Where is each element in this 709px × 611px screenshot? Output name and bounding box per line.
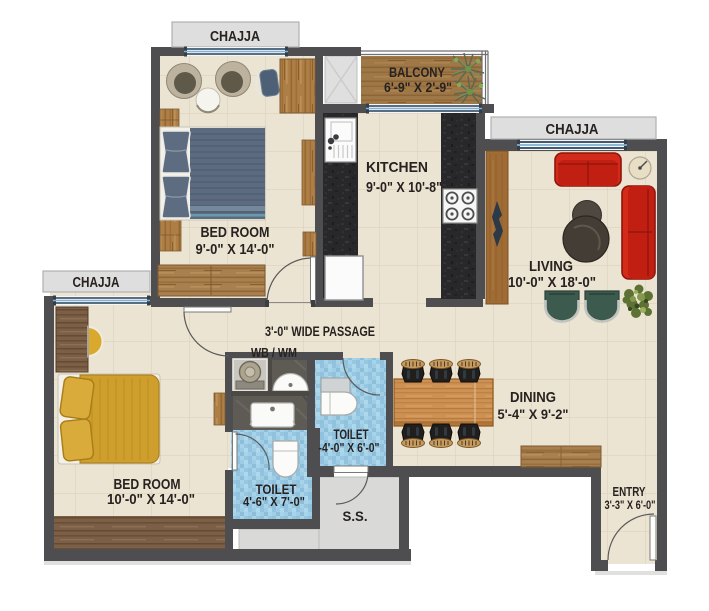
svg-text:S.S.: S.S.	[343, 508, 368, 524]
svg-text:9'-0" X 10'-8": 9'-0" X 10'-8"	[366, 179, 442, 196]
svg-text:4'-6" X 7'-0": 4'-6" X 7'-0"	[243, 495, 305, 509]
svg-text:ENTRY: ENTRY	[613, 484, 646, 499]
svg-text:5'-4" X 9'-2": 5'-4" X 9'-2"	[498, 406, 569, 422]
svg-text:CHAJJA: CHAJJA	[210, 29, 260, 45]
svg-text:9'-0" X 14'-0": 9'-0" X 14'-0"	[196, 241, 275, 258]
svg-text:3'-0" WIDE PASSAGE: 3'-0" WIDE PASSAGE	[265, 324, 375, 339]
svg-text:TOILET: TOILET	[334, 427, 370, 442]
svg-text:CHAJJA: CHAJJA	[546, 122, 599, 138]
svg-text:10'-0" X 18'-0": 10'-0" X 18'-0"	[508, 274, 596, 291]
svg-text:10'-0" X 14'-0": 10'-0" X 14'-0"	[107, 491, 195, 508]
svg-text:LIVING: LIVING	[529, 258, 573, 275]
svg-text:KITCHEN: KITCHEN	[366, 159, 428, 176]
svg-text:WB / WM: WB / WM	[251, 345, 297, 360]
svg-text:6'-9" X 2'-9": 6'-9" X 2'-9"	[384, 79, 452, 95]
svg-text:BED ROOM: BED ROOM	[201, 224, 270, 241]
svg-text:DINING: DINING	[510, 389, 556, 406]
svg-text:3'-3" X 6'-0": 3'-3" X 6'-0"	[605, 498, 656, 512]
svg-text:CHAJJA: CHAJJA	[73, 275, 120, 291]
svg-text:-4'-0" X 6'-0": -4'-0" X 6'-0"	[319, 441, 380, 455]
svg-text:BALCONY: BALCONY	[389, 64, 446, 80]
